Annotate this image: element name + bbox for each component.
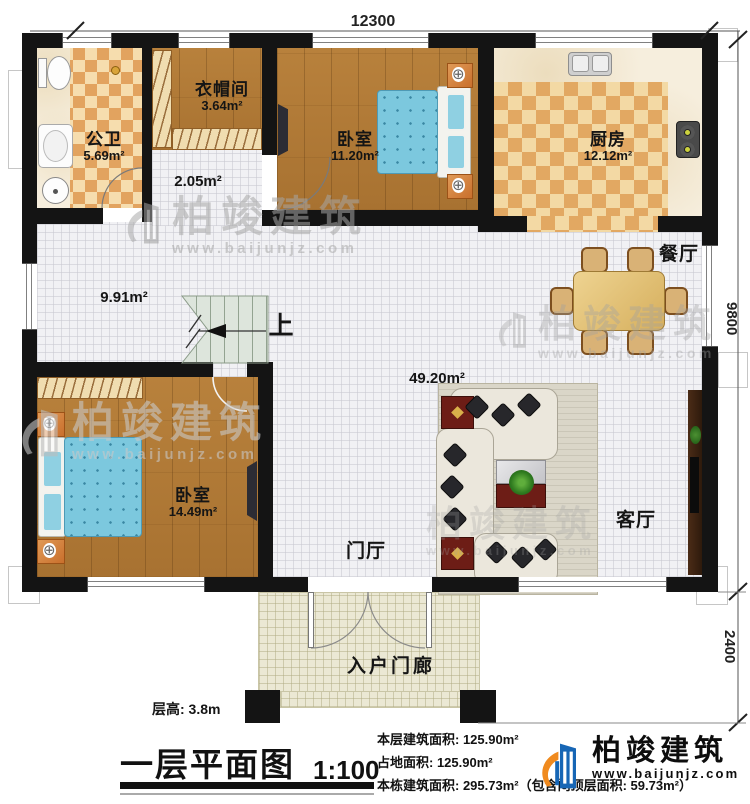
wall-bedroom2-top <box>22 362 213 377</box>
bed2-pillow-2 <box>42 492 63 532</box>
dining-chair-5 <box>550 287 574 315</box>
bedroom2-label: 卧室 14.49m² <box>158 486 228 520</box>
stove-burner-1-flame <box>685 130 690 135</box>
vanity-basin <box>43 130 68 162</box>
wall-bedroom1-left-upper <box>262 48 277 155</box>
foyer-label: 门厅 <box>340 541 392 562</box>
window-bathroom-top <box>62 33 112 48</box>
wall-kitchen-bottom-left <box>478 216 527 232</box>
hall-area-label: 2.05m² <box>164 174 232 191</box>
wall-kitchen-bottom-right <box>658 216 718 232</box>
door-knob <box>111 66 120 75</box>
window-corridor-left <box>22 263 37 330</box>
dining-chair-1 <box>581 247 608 273</box>
wall-bathroom-right <box>142 48 152 222</box>
window-kitchen-top <box>535 33 653 48</box>
bed2-mattress <box>64 437 142 537</box>
stairs-up-label: 上 <box>266 312 296 340</box>
kitchen-door-threshold <box>527 216 658 232</box>
wall-bedroom2-right <box>258 362 273 592</box>
bed1-pillow-2 <box>446 134 466 170</box>
cloakroom-wardrobe-left <box>152 50 172 148</box>
bathroom-name: 公卫 <box>68 130 140 149</box>
wall-bedroom1-bottom <box>262 210 480 226</box>
window-bedroom1-top <box>312 33 429 48</box>
bedroom1-name: 卧室 <box>322 130 388 149</box>
bedroom2-wardrobe <box>37 377 143 399</box>
title-underline-thin <box>120 793 374 795</box>
bedroom2-area: 14.49m² <box>158 505 228 520</box>
dining-chair-4 <box>627 329 654 355</box>
floor-height-label: 层高: 3.8m <box>152 702 262 718</box>
cloakroom-wardrobe-bottom <box>172 128 262 150</box>
bedroom1-label: 卧室 11.20m² <box>322 130 388 164</box>
cabinet-plant <box>690 426 701 444</box>
logo-url: www.baijunjz.com <box>592 766 739 781</box>
bed1-pillow-1 <box>446 93 466 131</box>
title-underline-thick <box>120 782 374 789</box>
kitchen-sink-bowl-2 <box>592 55 609 72</box>
dining-chair-3 <box>581 329 608 355</box>
toilet-tank <box>38 58 47 88</box>
toilet-bowl <box>47 56 71 90</box>
corridor-area-label: 9.91m² <box>92 290 156 307</box>
porch-column-right <box>460 690 496 723</box>
wall-bottom-3 <box>432 577 518 592</box>
entry-door-leaf-right <box>426 592 432 648</box>
cloakroom-area: 3.64m² <box>182 99 262 114</box>
wall-kitchen-left <box>478 48 494 232</box>
open-area-label: 49.20m² <box>402 371 472 388</box>
entry-door-leaf-left <box>308 592 314 648</box>
company-logo: 柏竣建筑 www.baijunjz.com <box>536 737 739 795</box>
wall-bathroom-bottom <box>22 208 103 224</box>
drawing-title: 一层平面图 <box>120 738 295 786</box>
dimension-top: 12300 <box>330 13 416 31</box>
dimension-right-lower: 2400 <box>721 630 738 674</box>
dining-chair-2 <box>627 247 654 273</box>
bathroom-area: 5.69m² <box>68 149 140 164</box>
porch-floor <box>258 592 480 693</box>
cloakroom-name: 衣帽间 <box>182 80 262 99</box>
bedroom2-tv <box>247 461 257 521</box>
logo-building-icon <box>536 737 584 795</box>
bedroom1-area: 11.20m² <box>322 149 388 164</box>
porch-label: 入户门廊 <box>336 656 446 677</box>
living-label: 客厅 <box>610 510 662 531</box>
kitchen-name: 厨房 <box>570 130 646 149</box>
logo-name: 柏竣建筑 <box>592 737 739 766</box>
corner-marker-right-mid <box>718 352 748 388</box>
potted-plant <box>509 470 534 495</box>
window-bedroom2-bottom <box>87 577 205 592</box>
drawing-title-row: 一层平面图 1:100 <box>120 738 380 786</box>
kitchen-label: 厨房 12.12m² <box>570 130 646 164</box>
stove-burner-2-flame <box>685 147 690 152</box>
bedroom2-name: 卧室 <box>158 486 228 505</box>
floor-plan-canvas: ⊕ ⊕ ⊕ ⊕ <box>0 0 750 804</box>
dining-table <box>573 271 665 331</box>
bed2-lamp-top: ⊕ <box>43 416 56 431</box>
bed2-pillow-1 <box>42 450 63 488</box>
wall-bottom-1 <box>22 577 87 592</box>
window-living-bottom <box>518 577 667 592</box>
dining-label: 餐厅 <box>652 244 706 265</box>
wall-bottom-4 <box>665 577 718 592</box>
kitchen-sink-bowl-1 <box>572 55 589 72</box>
bed2-lamp-bottom: ⊕ <box>43 543 56 558</box>
window-cloakroom-top <box>178 33 230 48</box>
bed1-lamp-top: ⊕ <box>452 67 465 82</box>
dining-chair-6 <box>664 287 688 315</box>
cloakroom-label: 衣帽间 3.64m² <box>182 80 262 114</box>
bed1-lamp-bottom: ⊕ <box>452 178 465 193</box>
round-sink-drain <box>53 189 58 194</box>
kitchen-area: 12.12m² <box>570 149 646 164</box>
bedroom1-tv <box>278 104 288 156</box>
porch-step <box>280 691 462 708</box>
dimension-right-upper: 9800 <box>723 302 740 346</box>
living-tv <box>690 457 699 513</box>
bathroom-label: 公卫 5.69m² <box>68 130 140 164</box>
wall-bottom-2 <box>203 577 308 592</box>
